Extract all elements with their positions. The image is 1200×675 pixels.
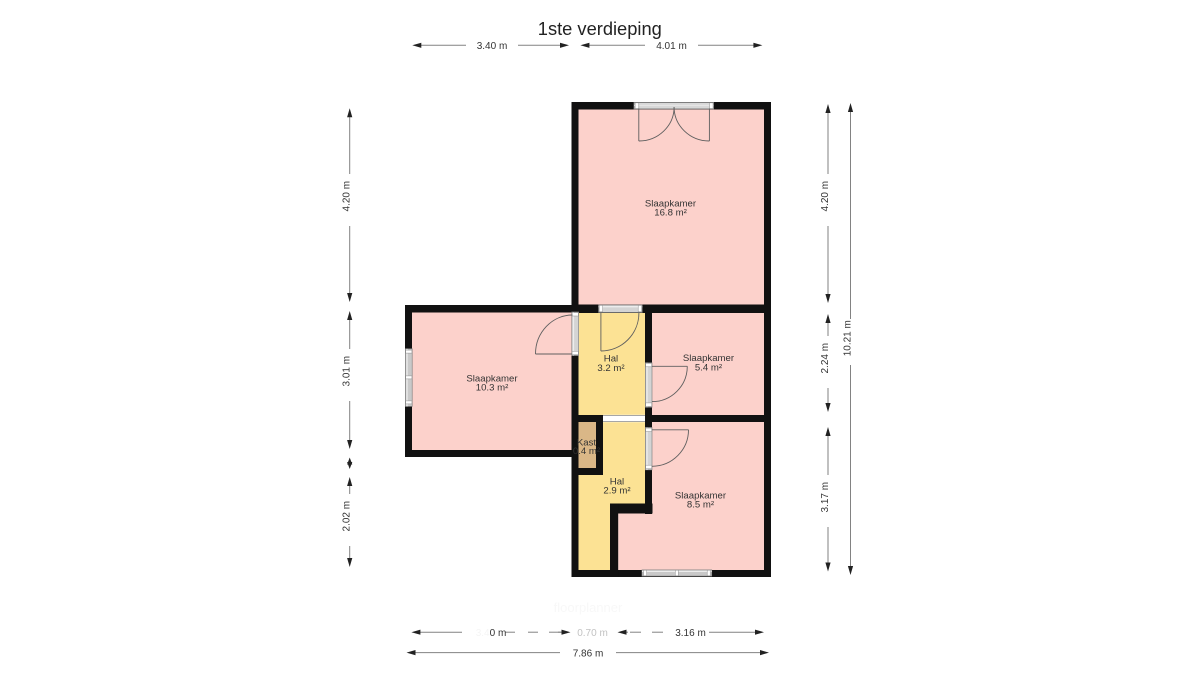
svg-text:10.21 m: 10.21 m — [843, 320, 854, 356]
svg-text:3.2 m²: 3.2 m² — [597, 363, 625, 374]
svg-text:16.8 m²: 16.8 m² — [654, 208, 687, 219]
svg-text:1ste verdieping: 1ste verdieping — [538, 18, 662, 39]
svg-text:0.4 m²: 0.4 m² — [573, 446, 601, 457]
svg-text:10.3 m²: 10.3 m² — [476, 383, 509, 394]
svg-text:0.70 m: 0.70 m — [577, 628, 608, 639]
svg-text:2.24 m: 2.24 m — [820, 343, 831, 374]
svg-text:3.40 m: 3.40 m — [477, 41, 508, 52]
svg-text:2.9 m²: 2.9 m² — [603, 485, 631, 496]
svg-text:3.17 m: 3.17 m — [820, 482, 831, 513]
svg-text:8.5 m²: 8.5 m² — [687, 500, 715, 511]
svg-text:5.4 m²: 5.4 m² — [695, 363, 723, 374]
svg-text:7.86 m: 7.86 m — [573, 648, 604, 659]
svg-text:4.01 m: 4.01 m — [656, 41, 687, 52]
svg-text:floorplanner: floorplanner — [554, 600, 623, 615]
svg-text:2.02 m: 2.02 m — [342, 501, 353, 532]
svg-text:3.16 m: 3.16 m — [675, 628, 706, 639]
svg-text:3.01 m: 3.01 m — [342, 356, 353, 387]
svg-text:4.20 m: 4.20 m — [342, 181, 353, 212]
svg-text:4.20 m: 4.20 m — [820, 181, 831, 212]
